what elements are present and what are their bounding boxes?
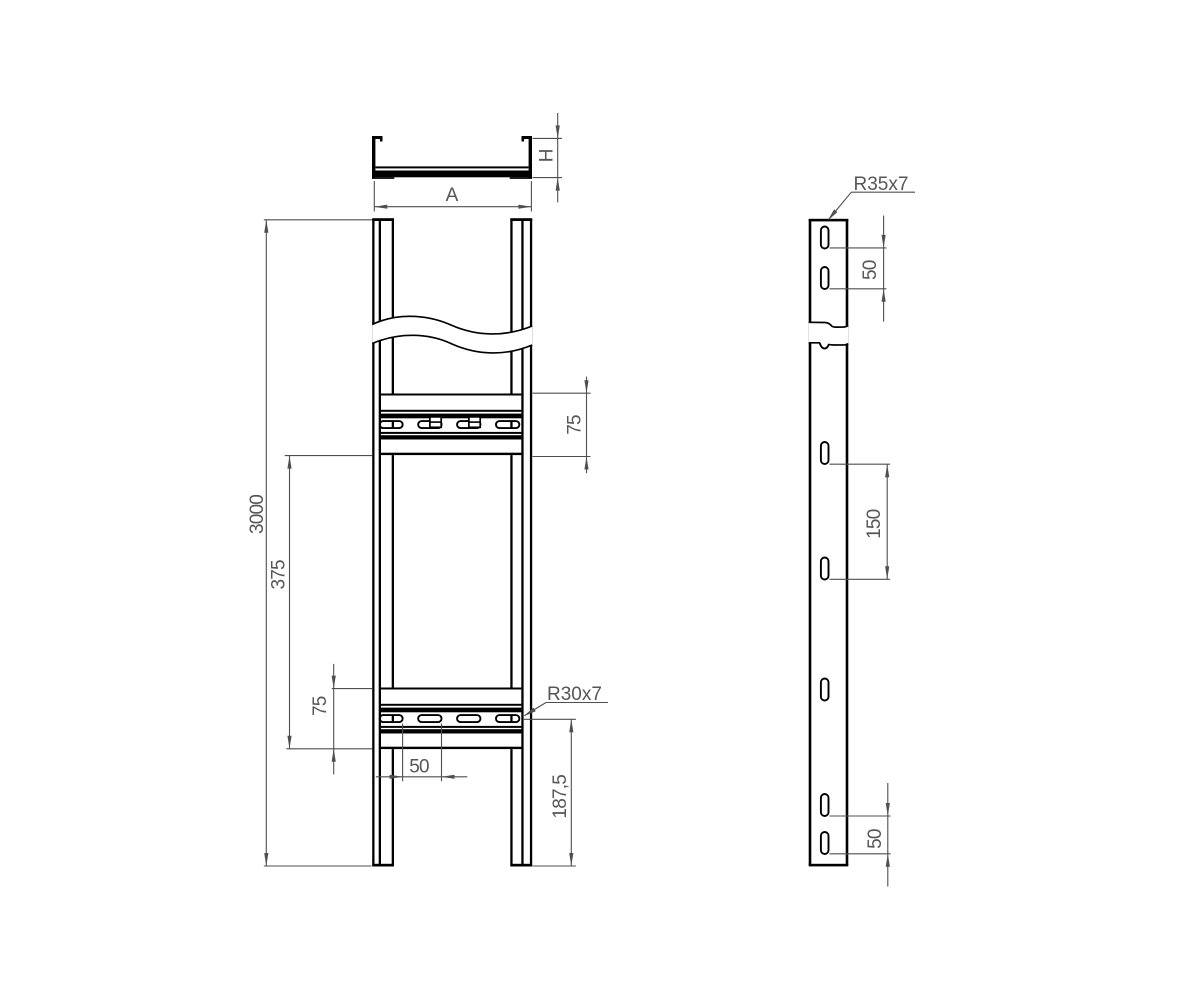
- svg-text:3000: 3000: [247, 495, 268, 534]
- svg-text:375: 375: [268, 560, 289, 590]
- svg-text:187,5: 187,5: [550, 775, 571, 819]
- svg-text:50: 50: [860, 260, 881, 280]
- svg-text:H: H: [536, 149, 557, 162]
- svg-text:75: 75: [565, 415, 586, 435]
- svg-text:50: 50: [865, 829, 886, 849]
- svg-text:A: A: [446, 185, 459, 206]
- svg-text:50: 50: [409, 757, 429, 778]
- svg-text:150: 150: [864, 509, 885, 539]
- svg-text:75: 75: [310, 696, 331, 716]
